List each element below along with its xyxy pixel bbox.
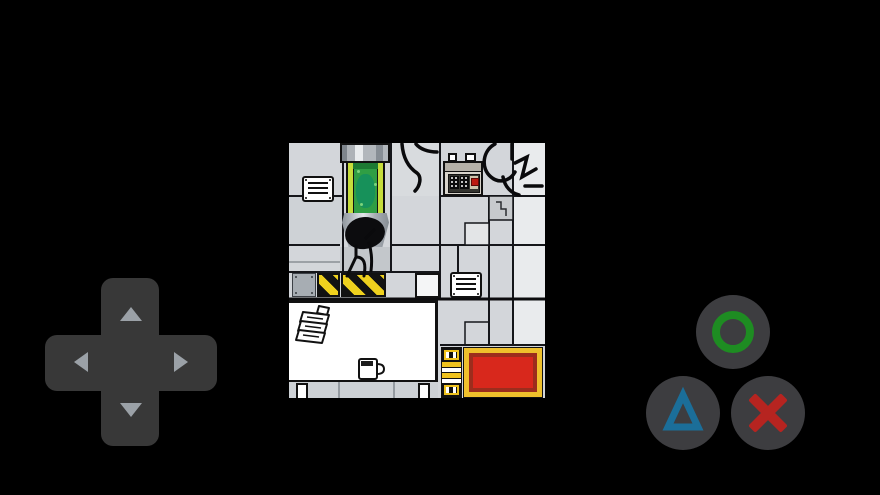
cable-scribbles: [289, 143, 545, 398]
triangle-icon: [646, 376, 720, 450]
circle-button[interactable]: [696, 295, 770, 369]
dpad-up-button[interactable]: [109, 292, 153, 336]
up-arrow-icon: [120, 307, 142, 321]
down-arrow-icon: [120, 403, 142, 417]
screen: [0, 0, 880, 495]
cross-button[interactable]: [731, 376, 805, 450]
dpad-right-button[interactable]: [159, 340, 203, 384]
circle-icon: [712, 311, 754, 353]
left-arrow-icon: [74, 352, 88, 372]
triangle-button[interactable]: [646, 376, 720, 450]
dpad-left-button[interactable]: [59, 340, 103, 384]
dpad-down-button[interactable]: [109, 388, 153, 432]
stick-figure-limbs: [347, 230, 374, 276]
dpad[interactable]: [45, 278, 217, 446]
game-screen: [289, 143, 545, 398]
right-arrow-icon: [174, 352, 188, 372]
